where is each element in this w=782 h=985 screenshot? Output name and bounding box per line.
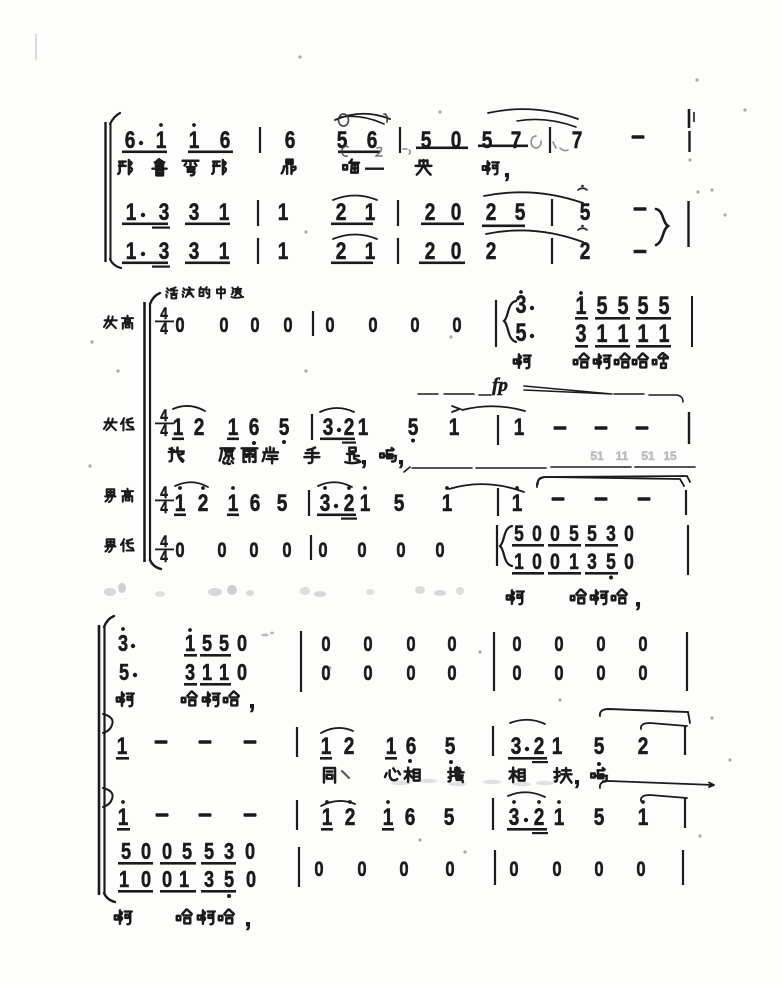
svg-text:0: 0 <box>175 314 184 337</box>
svg-text:3: 3 <box>189 199 200 226</box>
svg-text:0: 0 <box>550 549 560 574</box>
svg-text:2: 2 <box>425 238 436 265</box>
svg-text:,: , <box>635 584 642 612</box>
svg-text:1: 1 <box>386 733 397 760</box>
svg-text:0: 0 <box>452 314 461 337</box>
svg-text:1: 1 <box>156 127 167 154</box>
svg-text:5: 5 <box>121 838 131 864</box>
svg-text:0: 0 <box>368 314 377 337</box>
svg-text:1: 1 <box>228 490 239 517</box>
svg-text:5: 5 <box>597 292 608 320</box>
svg-text:0: 0 <box>162 838 172 864</box>
svg-text:5: 5 <box>182 838 192 864</box>
svg-text:0: 0 <box>552 858 561 881</box>
svg-text:1: 1 <box>597 320 608 348</box>
svg-text:7: 7 <box>511 127 522 154</box>
svg-text:6: 6 <box>220 127 231 154</box>
svg-text:1: 1 <box>126 238 137 265</box>
svg-text:4: 4 <box>160 498 168 517</box>
svg-text:15: 15 <box>663 449 677 463</box>
svg-text:0: 0 <box>325 314 334 337</box>
svg-text:5: 5 <box>204 838 214 864</box>
svg-text:3: 3 <box>587 549 597 574</box>
svg-text:1: 1 <box>512 490 523 517</box>
svg-text:5: 5 <box>516 319 527 347</box>
svg-text:0: 0 <box>363 633 372 656</box>
svg-text:0: 0 <box>406 633 415 656</box>
svg-text:1: 1 <box>638 804 649 831</box>
svg-text:,: , <box>574 762 581 790</box>
svg-text:2: 2 <box>486 238 497 265</box>
svg-text:0: 0 <box>554 662 563 685</box>
svg-text:5: 5 <box>659 292 670 320</box>
svg-text:,: , <box>249 686 256 714</box>
svg-text:0: 0 <box>451 127 462 154</box>
svg-text:1: 1 <box>360 490 371 517</box>
svg-text:0: 0 <box>596 633 605 656</box>
svg-text:1: 1 <box>618 320 629 348</box>
svg-text:0: 0 <box>363 662 372 685</box>
svg-text:2: 2 <box>486 199 497 226</box>
svg-text:0: 0 <box>321 662 330 685</box>
svg-text:2: 2 <box>344 414 355 441</box>
svg-text:11: 11 <box>616 449 629 463</box>
svg-text:0: 0 <box>532 521 542 546</box>
svg-text:0: 0 <box>636 858 645 881</box>
svg-text:0: 0 <box>217 539 226 562</box>
svg-text:4: 4 <box>160 547 168 566</box>
svg-text:5: 5 <box>594 804 605 831</box>
svg-text:5: 5 <box>202 630 212 656</box>
svg-text:0: 0 <box>399 858 408 881</box>
svg-text:5: 5 <box>421 127 432 154</box>
svg-text:0: 0 <box>406 662 415 685</box>
svg-text:2: 2 <box>534 804 545 831</box>
svg-text:0: 0 <box>550 521 560 546</box>
svg-text:1: 1 <box>179 866 189 892</box>
svg-text:0: 0 <box>318 539 327 562</box>
svg-text:2: 2 <box>345 804 356 831</box>
svg-text:6: 6 <box>249 414 260 441</box>
svg-text:1: 1 <box>552 733 563 760</box>
svg-text:1: 1 <box>118 804 129 831</box>
svg-text:1: 1 <box>117 733 128 760</box>
svg-text:5: 5 <box>606 549 616 574</box>
svg-text:,: , <box>398 442 405 470</box>
svg-text:,: , <box>504 155 511 183</box>
svg-text:,: , <box>361 442 368 470</box>
svg-text:0: 0 <box>321 633 330 656</box>
svg-text:5: 5 <box>514 521 524 546</box>
svg-text:0: 0 <box>141 866 151 892</box>
svg-text:2: 2 <box>336 199 347 226</box>
svg-text:0: 0 <box>445 858 454 881</box>
svg-text:0: 0 <box>624 549 634 574</box>
svg-text:6: 6 <box>406 733 417 760</box>
svg-text:3: 3 <box>320 490 331 517</box>
svg-text:0: 0 <box>245 838 255 864</box>
svg-text:1: 1 <box>514 549 524 574</box>
svg-text:0: 0 <box>282 539 291 562</box>
svg-text:5: 5 <box>444 804 455 831</box>
svg-text:1: 1 <box>659 320 670 348</box>
svg-text:0: 0 <box>451 238 462 265</box>
svg-text:0: 0 <box>451 199 462 226</box>
svg-text:3: 3 <box>159 238 170 265</box>
svg-text:3: 3 <box>509 804 520 831</box>
svg-text:1: 1 <box>576 292 587 320</box>
svg-text:5: 5 <box>445 733 456 760</box>
svg-text:0: 0 <box>237 630 247 656</box>
svg-text:3: 3 <box>118 630 128 656</box>
svg-text:0: 0 <box>249 539 258 562</box>
svg-text:2: 2 <box>425 199 436 226</box>
svg-text:0: 0 <box>410 314 419 337</box>
svg-text:1: 1 <box>173 414 184 441</box>
svg-text:0: 0 <box>283 314 292 337</box>
svg-text:1: 1 <box>449 414 460 441</box>
svg-text:2: 2 <box>198 490 209 517</box>
svg-text:51: 51 <box>590 449 604 463</box>
svg-text:1: 1 <box>321 733 332 760</box>
svg-text:fp: fp <box>492 375 508 396</box>
svg-text:1: 1 <box>358 414 369 441</box>
svg-text:5: 5 <box>119 659 129 685</box>
svg-text:3: 3 <box>224 838 234 864</box>
svg-text:5: 5 <box>569 521 579 546</box>
svg-text:5: 5 <box>224 866 234 892</box>
svg-text:5: 5 <box>482 127 493 154</box>
svg-text:2: 2 <box>638 733 649 760</box>
svg-text:0: 0 <box>141 838 151 864</box>
svg-text:6: 6 <box>125 127 136 154</box>
svg-text:0: 0 <box>162 866 172 892</box>
svg-text:2: 2 <box>344 490 355 517</box>
svg-text:0: 0 <box>447 662 456 685</box>
svg-text:0: 0 <box>624 521 634 546</box>
svg-text:1: 1 <box>185 630 195 656</box>
svg-text:5: 5 <box>277 490 288 517</box>
svg-text:2: 2 <box>336 238 347 265</box>
svg-text:5: 5 <box>219 630 229 656</box>
svg-text:5: 5 <box>638 292 649 320</box>
svg-text:1: 1 <box>219 659 229 685</box>
svg-text:0: 0 <box>638 633 647 656</box>
svg-text:1: 1 <box>442 490 453 517</box>
svg-text:0: 0 <box>509 858 518 881</box>
svg-text:3: 3 <box>606 521 616 546</box>
svg-text:0: 0 <box>512 662 521 685</box>
svg-text:3: 3 <box>516 291 527 319</box>
svg-text:3: 3 <box>159 199 170 226</box>
svg-text:0: 0 <box>512 633 521 656</box>
svg-text:0: 0 <box>175 539 184 562</box>
svg-text:6: 6 <box>405 804 416 831</box>
svg-text:6: 6 <box>367 127 378 154</box>
svg-text:0: 0 <box>237 659 247 685</box>
svg-text:0: 0 <box>532 549 542 574</box>
svg-text:0: 0 <box>594 858 603 881</box>
svg-text:1: 1 <box>278 199 289 226</box>
svg-text:1: 1 <box>219 238 230 265</box>
svg-text:3: 3 <box>185 659 195 685</box>
svg-text:5: 5 <box>279 414 290 441</box>
svg-text:7: 7 <box>572 127 583 154</box>
svg-text:0: 0 <box>250 314 259 337</box>
svg-text:5: 5 <box>594 733 605 760</box>
svg-text:0: 0 <box>596 662 605 685</box>
svg-text:0: 0 <box>357 539 366 562</box>
svg-text:1: 1 <box>638 320 649 348</box>
svg-text:4: 4 <box>160 421 168 440</box>
svg-text:5: 5 <box>618 292 629 320</box>
svg-text:1: 1 <box>514 414 525 441</box>
svg-text:5: 5 <box>515 199 526 226</box>
svg-text:0: 0 <box>638 662 647 685</box>
svg-text:3: 3 <box>204 866 214 892</box>
svg-text:2: 2 <box>534 733 545 760</box>
svg-text:1: 1 <box>126 199 137 226</box>
svg-text:6: 6 <box>250 490 261 517</box>
svg-text:1: 1 <box>554 804 565 831</box>
svg-text:0: 0 <box>219 314 228 337</box>
svg-text:3: 3 <box>511 733 522 760</box>
svg-text:4: 4 <box>160 319 168 338</box>
svg-text:3: 3 <box>576 320 587 348</box>
svg-text:6: 6 <box>285 127 296 154</box>
svg-text:1: 1 <box>278 238 289 265</box>
svg-text:0: 0 <box>447 633 456 656</box>
svg-text:0: 0 <box>396 539 405 562</box>
svg-text:0: 0 <box>554 633 563 656</box>
svg-text:0: 0 <box>435 539 444 562</box>
svg-text:1: 1 <box>175 490 186 517</box>
svg-text:51: 51 <box>641 449 655 463</box>
svg-text:5: 5 <box>394 490 405 517</box>
svg-text:1: 1 <box>569 549 579 574</box>
svg-text:0: 0 <box>357 858 366 881</box>
svg-text:,: , <box>245 904 252 932</box>
svg-text:2: 2 <box>194 414 205 441</box>
svg-text:1: 1 <box>365 199 376 226</box>
svg-text:1: 1 <box>219 199 230 226</box>
svg-text:1: 1 <box>383 804 394 831</box>
svg-text:1: 1 <box>228 414 239 441</box>
svg-text:0: 0 <box>314 858 323 881</box>
svg-text:0: 0 <box>246 866 256 892</box>
svg-text:2: 2 <box>344 733 355 760</box>
svg-text:1: 1 <box>189 127 200 154</box>
svg-text:5: 5 <box>408 414 419 441</box>
svg-text:3: 3 <box>323 414 334 441</box>
svg-text:1: 1 <box>202 659 212 685</box>
svg-text:5: 5 <box>587 521 597 546</box>
svg-text:1: 1 <box>322 804 333 831</box>
svg-text:1: 1 <box>119 866 129 892</box>
svg-text:1: 1 <box>365 238 376 265</box>
svg-text:3: 3 <box>189 238 200 265</box>
